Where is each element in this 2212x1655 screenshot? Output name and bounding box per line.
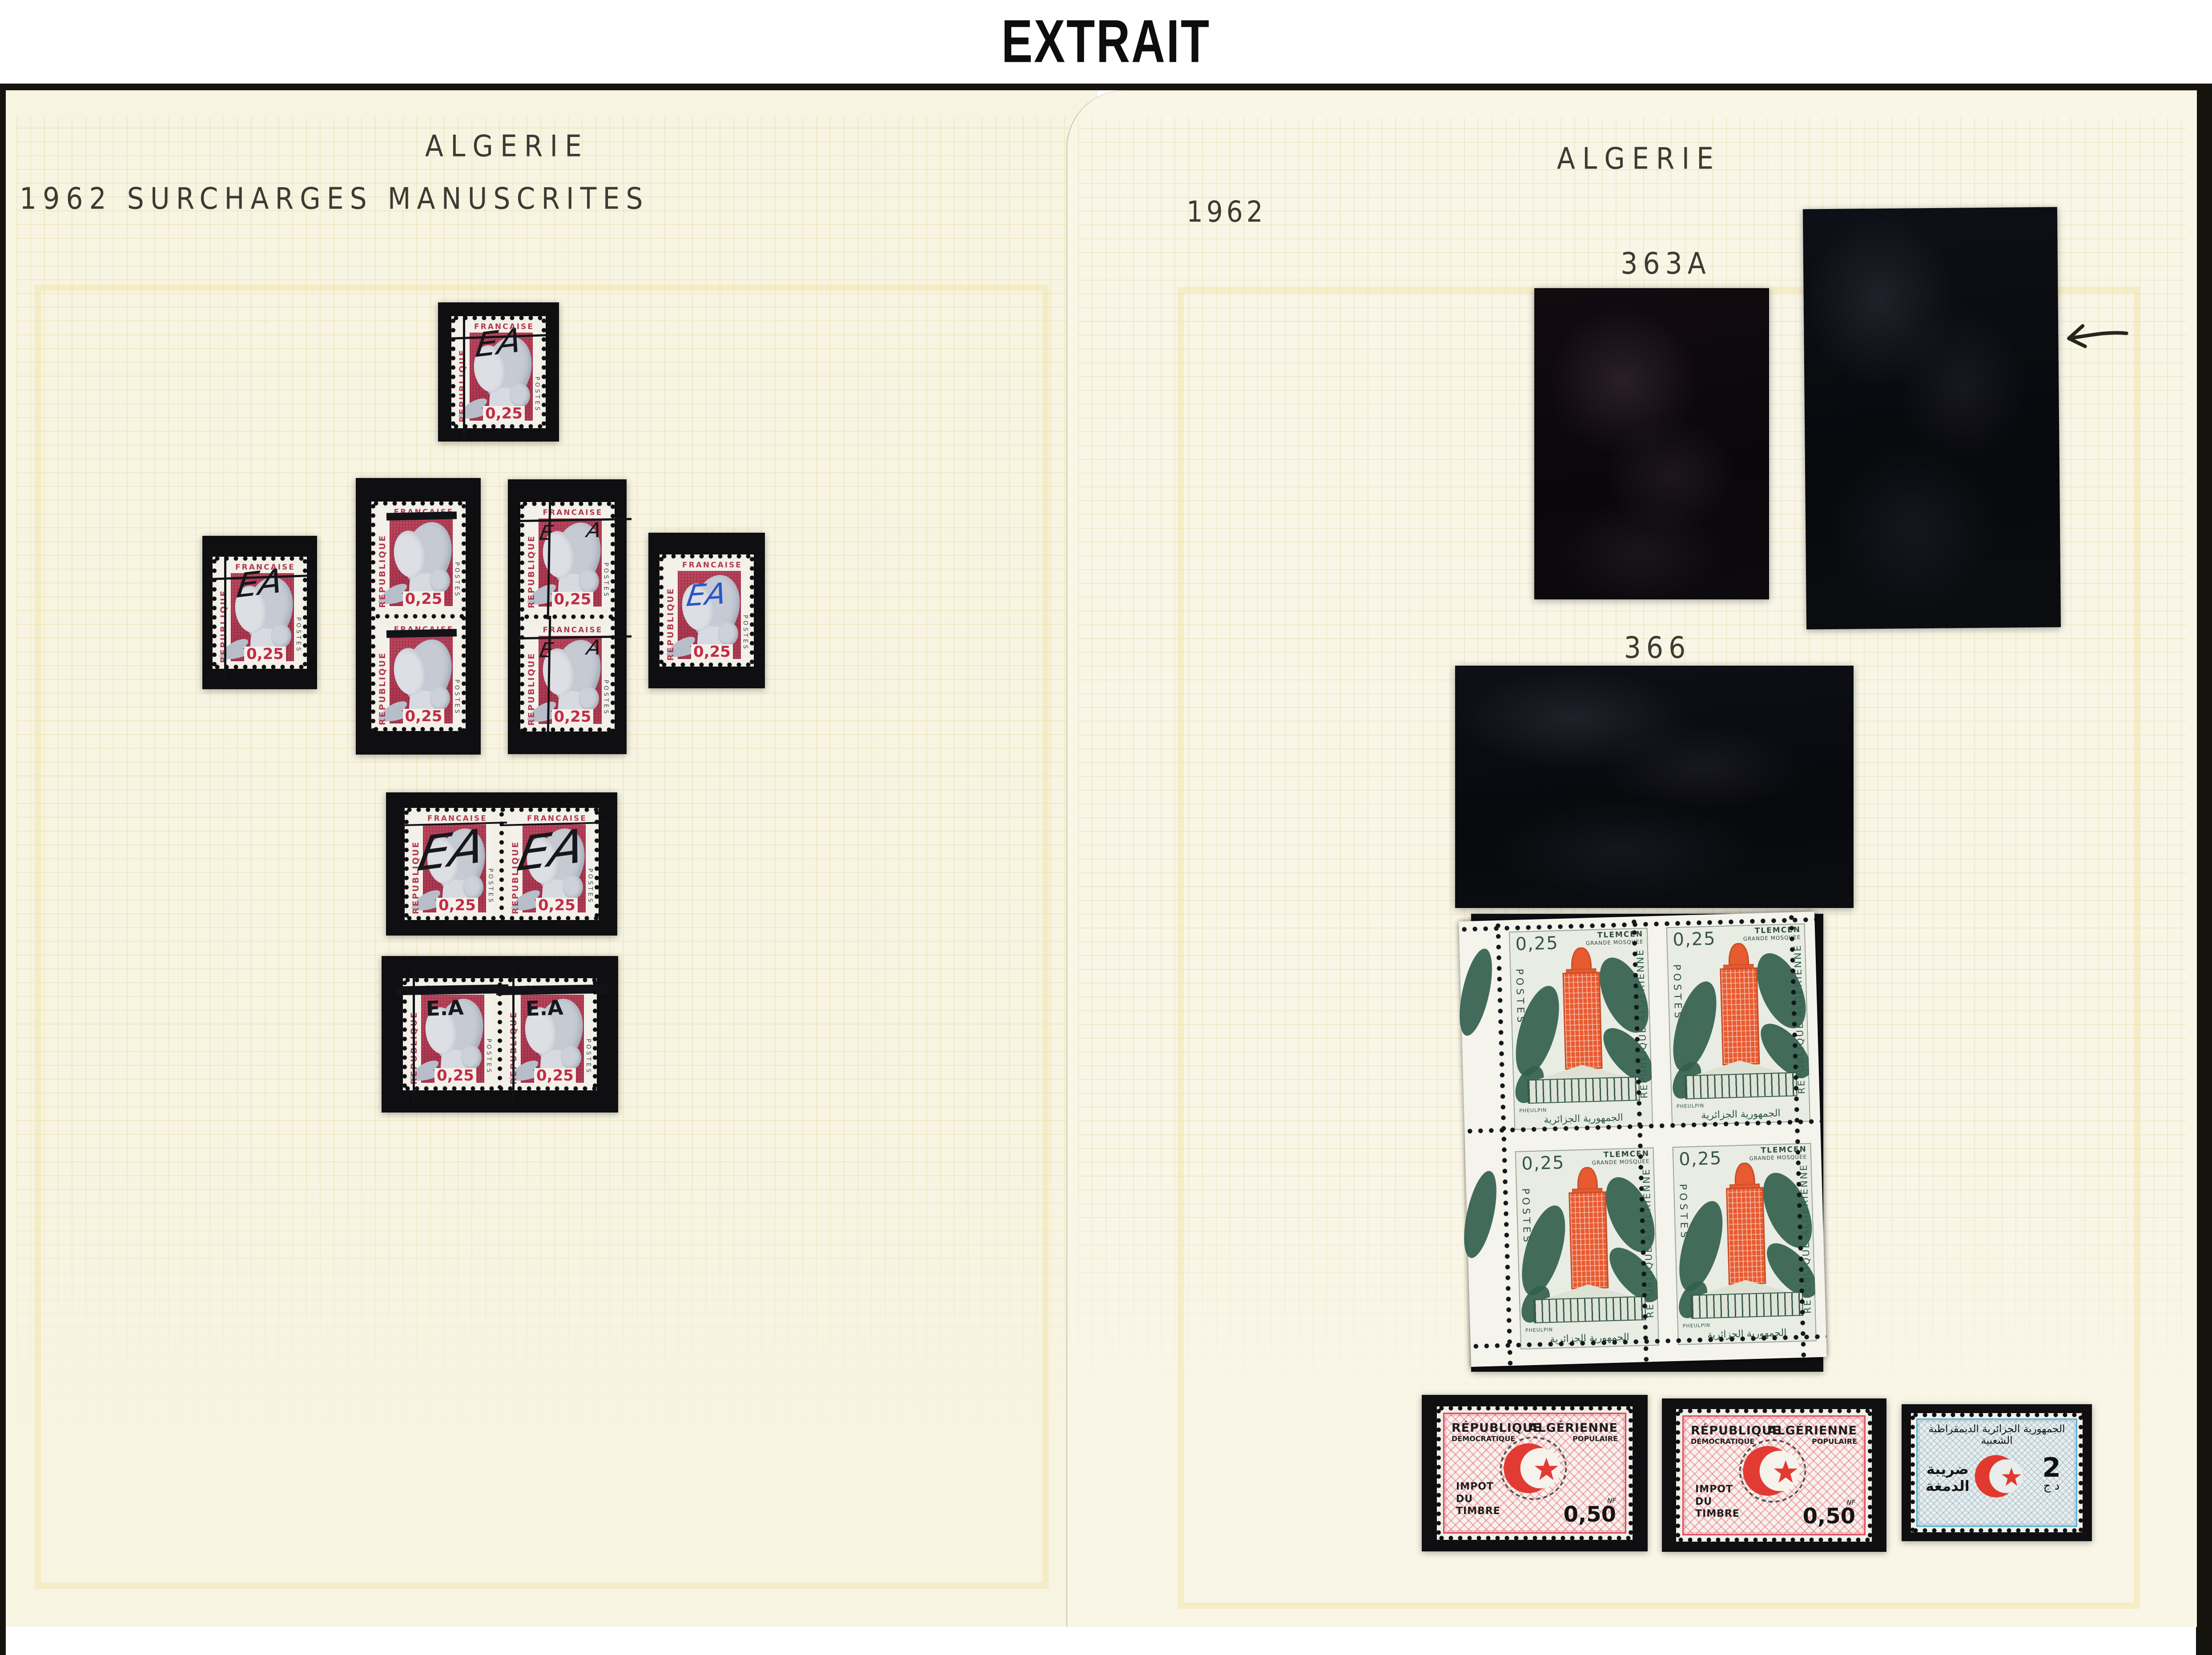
stamp-country-left: REPUBLIQUE: [527, 510, 536, 608]
revenue-country-right: ALGÉRIENNE POPULAIRE: [1528, 1421, 1618, 1443]
engraver-name: PHEULPIN: [1525, 1327, 1553, 1334]
marianne-stamp: REPUBLIQUEFRANCAISEPOSTES0,25EA: [520, 502, 615, 614]
engraver-name: PHEULPIN: [1677, 1103, 1704, 1109]
crescent-star-icon: [1971, 1447, 2029, 1505]
revenue-tax-label: IMPOT DU TIMBRE: [1695, 1483, 1740, 1520]
marianne-stamp: REPUBLIQUEFRANCAISEPOSTES0,25EA: [660, 554, 754, 667]
mosque-stamp-design: 0,25POSTESTLEMCENGRANDE MOSQUEEREPUBLIQU…: [1515, 1147, 1659, 1350]
engraver-name: PHEULPIN: [1519, 1107, 1547, 1114]
stamp-postes-label: POSTES: [587, 868, 593, 904]
dark-stamp-block-363a: [1534, 288, 1769, 599]
stamp-paper: REPUBLIQUEFRANCAISEPOSTES0,25EA: [660, 554, 754, 667]
arabic-word: الدمغة: [1926, 1478, 1970, 1494]
minaret-tower: [1726, 1187, 1766, 1285]
stamp-paper: REPUBLIQUEFRANCAISEPOSTES0,25EA: [451, 316, 546, 428]
revenue-stamp-mount: RÉPUBLIQUE DÉMOCRATIQUE ALGÉRIENNE POPUL…: [1422, 1395, 1648, 1551]
mosque-colonnade: [1527, 1077, 1640, 1104]
stamp-face-value: 0,25: [534, 1068, 576, 1083]
handwritten-ea-overprint: EA: [514, 823, 588, 879]
stamp-country-left: REPUBLIQUE: [378, 510, 387, 608]
marianne-stamp: REPUBLIQUEFRANCAISEPOSTES0,25E.A: [503, 978, 597, 1090]
stamp-mount-hpair-bottom: REPUBLIQUEFRANCAISEPOSTES0,25E.AREPUBLIQ…: [382, 956, 618, 1113]
revenue-stamp-design: RÉPUBLIQUE DÉMOCRATIQUE ALGÉRIENNE POPUL…: [1443, 1413, 1626, 1534]
stamp-country-left: REPUBLIQUE: [527, 628, 536, 726]
marianne-stamp: REPUBLIQUEFRANCAISEPOSTES0,25EA: [504, 808, 599, 920]
stamp-mount-hpair-middle: REPUBLIQUEFRANCAISEPOSTES0,25EAREPUBLIQU…: [386, 792, 617, 936]
stamp-country-top: FRANCAISE: [682, 561, 742, 570]
minaret-tower: [1720, 968, 1760, 1065]
left-arrow-icon: [2062, 317, 2130, 357]
strike-line-vertical: [224, 550, 226, 679]
stamp-face-value: 0,25: [536, 898, 578, 913]
dark-stamp-block-tall: [1803, 207, 2061, 630]
revenue-value: NF 0,50: [1803, 1500, 1855, 1526]
marianne-bun: [430, 686, 450, 710]
perforation-column: [497, 980, 503, 1089]
stamp-face-value: 0,25: [552, 709, 594, 724]
revenue-amount: 0,50: [1564, 1502, 1616, 1527]
handwritten-ea-overprint: EA: [474, 323, 523, 362]
revenue-stamp-blue: الجمهورية الجزائرية الديمقراطية الشعبية …: [1911, 1413, 2083, 1532]
revenue-algerienne: ALGÉRIENNE: [1528, 1421, 1618, 1435]
mosque-colonnade: [1685, 1072, 1797, 1099]
stamp-postes-label: POSTES: [487, 868, 493, 904]
marianne-bun: [271, 624, 291, 648]
stamp-paper: REPUBLIQUEFRANCAISEPOSTES0,25EAREPUBLIQU…: [405, 808, 599, 920]
stamp-face-value: 0,25: [1679, 1148, 1722, 1170]
stamp-paper: REPUBLIQUEFRANCAISEPOSTES0,25REPUBLIQUEF…: [371, 502, 466, 731]
stamp-face-value: 0,25: [434, 1068, 476, 1083]
stamp-mount-single-left: REPUBLIQUEFRANCAISEPOSTES0,25EA: [202, 536, 317, 689]
stamp-country-top: FRANCAISE: [543, 508, 603, 517]
mosque-stamp-design: 0,25POSTESTLEMCENGRANDE MOSQUEEREPUBLIQU…: [1509, 928, 1653, 1130]
revenue-stamp-mount: RÉPUBLIQUE DÉMOCRATIQUE ALGÉRIENNE POPUL…: [1662, 1398, 1886, 1552]
stamp-mount-vpair-left: REPUBLIQUEFRANCAISEPOSTES0,25REPUBLIQUEF…: [356, 478, 481, 755]
tax-line: DU: [1695, 1496, 1712, 1507]
stamp-paper: REPUBLIQUEFRANCAISEPOSTES0,25EAREPUBLIQU…: [520, 502, 615, 731]
stamp-country-left: REPUBLIQUE: [666, 563, 676, 661]
handwritten-ea-overprint: E.A: [426, 997, 464, 1019]
revenue-stamp-red: RÉPUBLIQUE DÉMOCRATIQUE ALGÉRIENNE POPUL…: [1437, 1406, 1633, 1540]
marianne-stamp: REPUBLIQUEFRANCAISEPOSTES0,25EA: [520, 619, 615, 731]
engraver-name: PHEULPIN: [1683, 1322, 1710, 1329]
revenue-arabic-title: الجمهورية الجزائرية الديمقراطية الشعبية: [1918, 1423, 2076, 1446]
marianne-bun: [463, 875, 483, 899]
mosque-stamp-design: 0,25POSTESTLEMCENGRANDE MOSQUEEREPUBLIQU…: [1666, 924, 1810, 1126]
stamp-postes-label: POSTES: [603, 680, 609, 716]
strike-line-vertical: [512, 970, 515, 1104]
stamp-mount-single-right: REPUBLIQUEFRANCAISEPOSTES0,25EA: [648, 533, 765, 688]
album-scan: EXTRAIT ALGERIE 1962 SURCHARGES MANUSCRI…: [0, 0, 2212, 1655]
marianne-design: REPUBLIQUEFRANCAISEPOSTES0,25: [377, 625, 460, 725]
marianne-stamp: REPUBLIQUEFRANCAISEPOSTES0,25: [371, 502, 466, 614]
strike-line-vertical: [413, 970, 415, 1104]
marianne-design: REPUBLIQUEFRANCAISEPOSTES0,25: [377, 507, 460, 608]
mosque-stamp-design: 0,25POSTESTLEMCENGRANDE MOSQUEEREPUBLIQU…: [1673, 1143, 1817, 1345]
dark-stamp-block-366: [1455, 666, 1854, 908]
crescent-star-icon: [1498, 1433, 1569, 1504]
revenue-value: 2 د ج: [2042, 1455, 2061, 1492]
tax-line: TIMBRE: [1456, 1506, 1500, 1517]
stamp-mount-single-top: REPUBLIQUEFRANCAISEPOSTES0,25EA: [438, 302, 559, 442]
arabic-word: ضريبة: [1926, 1461, 1969, 1478]
marianne-bun: [430, 569, 450, 593]
stamp-postes-label: POSTES: [742, 615, 748, 651]
mosque-block-mount: REPUBLIQUE ALGERIENNEREPUBLIQUE ALGERIEN…: [1471, 914, 1823, 1372]
revenue-stamp-design: RÉPUBLIQUE DÉMOCRATIQUE ALGÉRIENNE POPUL…: [1682, 1415, 1866, 1535]
stamp-postes-label: POSTES: [454, 562, 460, 598]
perforation-row: [522, 614, 613, 619]
mosque-block-of-four: REPUBLIQUE ALGERIENNEREPUBLIQUE ALGERIEN…: [1459, 912, 1827, 1367]
revenue-stamp-design: الجمهورية الجزائرية الديمقراطية الشعبية …: [1916, 1418, 2077, 1527]
tax-line: IMPOT: [1456, 1481, 1494, 1492]
marianne-stamp: REPUBLIQUEFRANCAISEPOSTES0,25E.A: [403, 978, 497, 1090]
revenue-amount: 0,50: [1803, 1504, 1855, 1529]
mosque-colonnade: [1691, 1292, 1803, 1319]
revenue-value: NF 0,50: [1564, 1498, 1616, 1524]
perforation-row: [373, 614, 464, 619]
stamp-face-value: 0,25: [483, 406, 525, 421]
stamp-face-value: 0,25: [1515, 933, 1559, 955]
stamp-postes-label: POSTES: [295, 617, 301, 653]
marianne-stamp: REPUBLIQUEFRANCAISEPOSTES0,25: [371, 619, 466, 731]
marianne-bun: [579, 569, 599, 593]
stamp-face-value: 0,25: [436, 898, 478, 913]
palm-leaf: [1459, 946, 1498, 1038]
marianne-bun: [579, 687, 599, 711]
mosque-colonnade: [1533, 1296, 1646, 1323]
revenue-amount: 2: [2042, 1455, 2061, 1481]
stamp-country-top: FRANCAISE: [543, 626, 603, 635]
marianne-stamp: REPUBLIQUEFRANCAISEPOSTES0,25EA: [451, 316, 546, 428]
revenue-algerienne: ALGÉRIENNE: [1767, 1424, 1857, 1438]
minaret-tower: [1569, 1191, 1609, 1289]
crescent-star-icon: [1737, 1435, 1808, 1506]
revenue-country-right: ALGÉRIENNE POPULAIRE: [1767, 1424, 1857, 1446]
stamp-face-value: 0,25: [403, 591, 445, 607]
revenue-stamp-red: RÉPUBLIQUE DÉMOCRATIQUE ALGÉRIENNE POPUL…: [1676, 1409, 1872, 1542]
revenue-tax-label: IMPOT DU TIMBRE: [1456, 1481, 1500, 1518]
obliteration-bar: [386, 629, 456, 638]
stamp-postes-label: POSTES: [534, 377, 540, 413]
revenue-arabic-tax: ضريبة الدمغة: [1926, 1461, 1970, 1495]
marianne-bun: [718, 622, 738, 646]
tax-line: DU: [1456, 1494, 1473, 1505]
revenue-populaire: POPULAIRE: [1528, 1435, 1618, 1443]
marianne-stamp: REPUBLIQUEFRANCAISEPOSTES0,25EA: [213, 557, 307, 669]
revenue-currency: د ج: [2042, 1481, 2061, 1492]
strike-line-vertical: [463, 309, 465, 438]
handwritten-blue-ea-overprint: EA: [685, 579, 728, 611]
stamp-postes-label: POSTES: [485, 1039, 491, 1075]
stamp-country-left: REPUBLIQUE: [378, 627, 387, 725]
marianne-stamp: REPUBLIQUEFRANCAISEPOSTES0,25EA: [405, 808, 499, 920]
handwritten-ea-overprint: EA: [414, 823, 489, 879]
marianne-bun: [563, 875, 583, 899]
stamp-postes-label: POSTES: [585, 1039, 591, 1075]
stamp-face-value: 0,25: [403, 709, 445, 724]
stamp-mount-vpair-right: REPUBLIQUEFRANCAISEPOSTES0,25EAREPUBLIQU…: [508, 479, 627, 754]
minaret-tower: [1562, 972, 1602, 1070]
stamp-face-value: 0,25: [1521, 1153, 1565, 1174]
stamp-face-value: 0,25: [244, 647, 286, 662]
stamp-paper: REPUBLIQUEFRANCAISEPOSTES0,25E.AREPUBLIQ…: [403, 978, 597, 1090]
marianne-bun: [510, 383, 530, 407]
marianne-bun: [461, 1045, 482, 1069]
tax-line: IMPOT: [1695, 1484, 1733, 1495]
obliteration-bar: [386, 511, 456, 520]
stamp-postes-label: POSTES: [454, 679, 460, 715]
revenue-stamp-mount: الجمهورية الجزائرية الديمقراطية الشعبية …: [1902, 1404, 2092, 1541]
handwritten-ea-overprint: E.A: [525, 997, 563, 1019]
tax-line: TIMBRE: [1695, 1508, 1740, 1519]
stamp-face-value: 0,25: [691, 644, 733, 659]
stamp-postes-label: POSTES: [603, 562, 609, 599]
handwritten-ea-overprint: EA: [235, 564, 285, 603]
stamp-face-value: 0,25: [1673, 928, 1716, 950]
stamp-paper: REPUBLIQUEFRANCAISEPOSTES0,25EA: [213, 557, 307, 669]
marianne-bun: [561, 1045, 581, 1069]
revenue-populaire: POPULAIRE: [1767, 1438, 1857, 1446]
stamp-face-value: 0,25: [552, 592, 594, 607]
